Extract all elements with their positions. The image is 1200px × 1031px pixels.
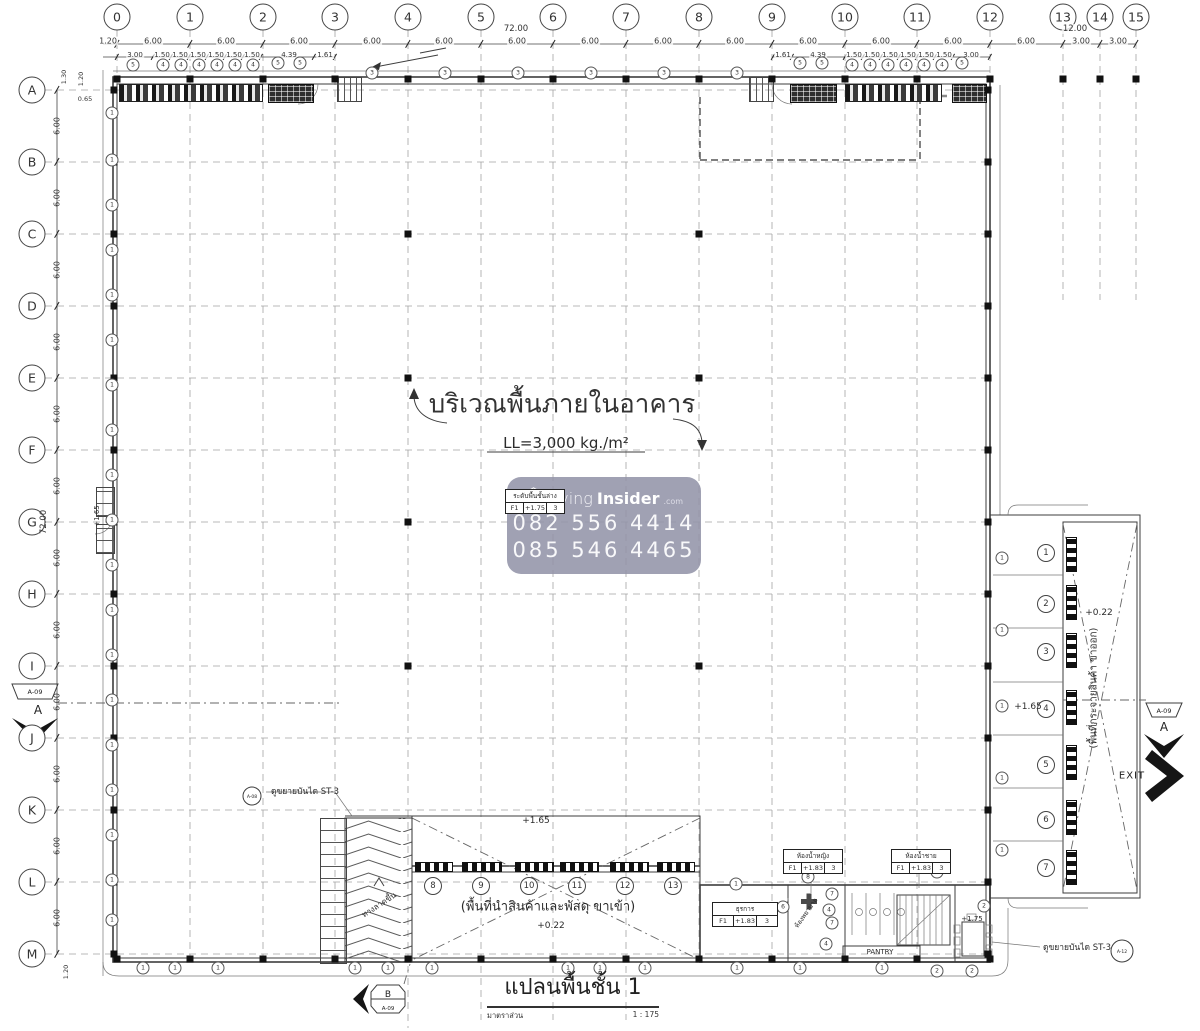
- grid-row-bubble: B: [19, 149, 46, 176]
- wall-panel-tag: 1: [996, 624, 1009, 637]
- dim-label: 6.00: [871, 37, 891, 46]
- annotation-text: +1.65: [93, 505, 101, 526]
- wall-panel-tag: 1: [106, 199, 119, 212]
- dim-label: 1.20: [98, 37, 118, 46]
- overall-dim-top: 72.00: [503, 24, 529, 34]
- wall-column: [111, 663, 118, 670]
- dim-label: 6.00: [53, 404, 62, 424]
- dim-label: 6.00: [289, 37, 309, 46]
- reference-tag: 4: [229, 59, 242, 72]
- toilet-fixtures-right: [845, 84, 942, 102]
- wall-column: [696, 76, 703, 83]
- reference-tag: 4: [820, 938, 833, 951]
- wall-column: [550, 76, 557, 83]
- dock-leveler: [462, 862, 502, 872]
- reference-tag: 4: [846, 59, 859, 72]
- wc-fixture: [870, 909, 877, 916]
- dock-leveler: [560, 862, 599, 872]
- section-line-a: [58, 700, 1146, 703]
- wall-column: [985, 591, 992, 598]
- wall-panel-tag: 1: [106, 784, 119, 797]
- dock-door-number: 5: [1037, 756, 1055, 774]
- section-sheet-left: A-09: [28, 688, 43, 696]
- reference-tag: 5: [816, 57, 829, 70]
- dock-door-number: 1: [1037, 544, 1055, 562]
- wall-column: [985, 447, 992, 454]
- dim-label: 3.00: [1071, 37, 1091, 46]
- reference-tag: 5: [127, 59, 140, 72]
- toilet-stall-partitions: [852, 893, 894, 935]
- dock-door-number: 2: [1037, 595, 1055, 613]
- grid-column-bubble: 9: [759, 4, 786, 31]
- grid-column-bubble: 0: [104, 4, 131, 31]
- reference-tag: 4: [175, 59, 188, 72]
- dim-label: 1.50: [917, 51, 935, 59]
- dock-annex-wall: [990, 515, 1140, 898]
- room-level-cell: 3: [825, 863, 842, 873]
- room-level-cell: +1.83: [734, 916, 757, 926]
- dock-door-number: 6: [1037, 811, 1055, 829]
- wall-panel-tag: 1: [106, 604, 119, 617]
- reference-tag: 5: [794, 57, 807, 70]
- wall-column: [111, 87, 118, 94]
- floor-plan-sheet: A-08 A-12 A-09 A A-09 A B A-09 012345678…: [0, 0, 1200, 1031]
- dim-label: 6.00: [53, 188, 62, 208]
- section-letter-left: A: [34, 703, 43, 717]
- inbound-cross-lines: [412, 818, 700, 960]
- grid-column-bubble: 2: [250, 4, 277, 31]
- section-arrow-b: [353, 984, 369, 1014]
- dim-label: 3.00: [1108, 37, 1128, 46]
- dim-label: 1.30: [60, 69, 68, 85]
- dim-label: 3.00: [126, 51, 144, 59]
- wall-panel-tag: 1: [169, 962, 182, 975]
- room-level-cell: +1.75: [524, 503, 547, 513]
- wc-fixture: [856, 909, 863, 916]
- reference-tag: 4: [882, 59, 895, 72]
- wall-panel-tag: 1: [106, 244, 119, 257]
- dock-leveler: [657, 862, 695, 872]
- grid-column-bubble: 4: [395, 4, 422, 31]
- reference-tag: 7: [826, 888, 839, 901]
- reference-tag: 2: [978, 900, 991, 913]
- reference-tag: 7: [826, 917, 839, 930]
- reference-tag: 2: [931, 965, 944, 978]
- reference-tag: 3: [366, 67, 379, 80]
- wall-panel-tag: 1: [106, 424, 119, 437]
- grid-column-bubble: 6: [540, 4, 567, 31]
- wall-panel-tag: 1: [106, 829, 119, 842]
- dim-label: 6.00: [725, 37, 745, 46]
- dock-leveler: [610, 862, 649, 872]
- grid-row-bubble: I: [19, 653, 46, 680]
- reference-tag: 3: [585, 67, 598, 80]
- wall-panel-tag: 1: [996, 844, 1009, 857]
- interior-column: [696, 663, 703, 670]
- dock-leveler: [1066, 745, 1077, 780]
- wall-panel-tag: 1: [106, 334, 119, 347]
- wall-column: [985, 519, 992, 526]
- reference-tag: 4: [823, 904, 836, 917]
- wall-column: [111, 231, 118, 238]
- dock-leveler: [1066, 537, 1077, 572]
- grid-row-bubble: H: [19, 581, 46, 608]
- wall-column: [111, 303, 118, 310]
- dim-label: 6.00: [143, 37, 163, 46]
- wall-column: [985, 807, 992, 814]
- annotation-text: บริเวณพื้นภายในอาคาร: [429, 384, 696, 425]
- wall-column: [114, 76, 121, 83]
- dim-label: 6.00: [580, 37, 600, 46]
- wall-panel-tag: 1: [106, 739, 119, 752]
- interior-column: [696, 231, 703, 238]
- dim-label: 1.50: [863, 51, 881, 59]
- dim-label: 0.65: [77, 95, 93, 103]
- wall-column: [111, 807, 118, 814]
- reference-tag: 4: [211, 59, 224, 72]
- grid-row-bubble: A: [19, 77, 46, 104]
- overall-dim-top-right: 12.00: [1062, 24, 1088, 34]
- room-level-cell: 3: [933, 863, 950, 873]
- stair-left-wall-lower: [96, 524, 115, 554]
- dim-label: 6.00: [53, 260, 62, 280]
- note-arrow-left-head: [409, 388, 419, 399]
- exit-arrow-icon: [1145, 750, 1184, 802]
- wall-panel-tag: 1: [426, 962, 439, 975]
- stair-top-left: [337, 77, 362, 102]
- wall-column: [985, 231, 992, 238]
- dim-label: 6.00: [53, 908, 62, 928]
- grid-column-bubble: 7: [613, 4, 640, 31]
- room-level-cell: 3: [547, 503, 564, 513]
- annotation-text: EXIT: [1119, 771, 1145, 782]
- annotation-text: +0.22: [1085, 608, 1113, 618]
- wall-column: [914, 76, 921, 83]
- interior-column: [696, 375, 703, 382]
- reference-tag: 4: [918, 59, 931, 72]
- grid-row-bubble: D: [19, 293, 46, 320]
- tank-block-right: [790, 84, 837, 103]
- wall-column: [985, 375, 992, 382]
- section-sheet-right: A-09: [1157, 707, 1172, 715]
- room-level-cell: F1: [892, 863, 910, 873]
- drawing-title: แปลนพื้นชั้น 1: [487, 969, 659, 1008]
- annotation-text: +1.75: [961, 915, 982, 923]
- dim-label: 1.61: [774, 51, 792, 59]
- wall-column: [987, 76, 994, 83]
- wall-column: [332, 76, 339, 83]
- grid-column-bubble: 5: [468, 4, 495, 31]
- grid-row-bubble: K: [19, 797, 46, 824]
- tank-block-corner: [952, 84, 987, 103]
- grid-row-bubble: F: [19, 437, 46, 464]
- reference-tag: 4: [900, 59, 913, 72]
- apron-bottom: [103, 908, 1008, 976]
- dim-label: 6.00: [53, 692, 62, 712]
- wall-panel-tag: 1: [996, 552, 1009, 565]
- dim-label: 6.00: [362, 37, 382, 46]
- wall-column: [842, 76, 849, 83]
- grid-row-bubble: J: [19, 725, 46, 752]
- wall-panel-tag: 1: [106, 914, 119, 927]
- reference-tag: 6: [777, 901, 790, 914]
- room-name: ห้องน้ำหญิง: [784, 850, 842, 863]
- wall-column: [985, 87, 992, 94]
- scale-label: มาตราส่วน: [487, 1010, 523, 1022]
- room-level-cell: F1: [713, 916, 734, 926]
- wall-column: [478, 956, 485, 963]
- wall-panel-tag: 1: [106, 514, 119, 527]
- toilet-fixtures-left: [119, 84, 263, 102]
- room-name: ธุรการ: [713, 903, 777, 916]
- dim-label: 1.50: [935, 51, 953, 59]
- section-line-b-connector: [404, 964, 410, 984]
- wall-panel-tag: 1: [106, 469, 119, 482]
- wall-panel-tag: 1: [106, 559, 119, 572]
- scale-value: 1 : 175: [633, 1010, 659, 1022]
- annotation-text: LL=3,000 kg./m²: [503, 434, 629, 452]
- dock-leveler: [1066, 690, 1077, 725]
- dim-label: 1.61: [316, 51, 334, 59]
- wall-panel-tag: 1: [106, 154, 119, 167]
- room-label-box: ระดับพื้นชั้นล่างF1+1.753: [505, 489, 565, 514]
- wall-column: [260, 956, 267, 963]
- wall-panel-tag: 1: [137, 962, 150, 975]
- wall-panel-tag: 1: [106, 694, 119, 707]
- section-letter-right: A: [1160, 720, 1169, 734]
- callout-ref-right: A-12: [1117, 949, 1127, 955]
- interior-column: [405, 375, 412, 382]
- grid-row-bubble: E: [19, 365, 46, 392]
- dim-label: 6.00: [53, 764, 62, 784]
- reference-tag: 5: [294, 57, 307, 70]
- dim-label: 6.00: [943, 37, 963, 46]
- section-letter-b: B: [385, 990, 391, 1000]
- wall-panel-tag: 1: [106, 649, 119, 662]
- dim-label: 6.00: [53, 476, 62, 496]
- grid-column-bubble: 10: [832, 4, 859, 31]
- annotation-text: +1.65: [522, 816, 550, 826]
- grid-column-bubble: 12: [977, 4, 1004, 31]
- wall-column: [985, 879, 992, 886]
- dock-door-number: 13: [664, 877, 682, 895]
- grid-column-bubble: 1: [177, 4, 204, 31]
- mezzanine-dashed-outline: [700, 97, 920, 160]
- annotation-text: (พื้นที่กระจายสินค้า ขาออก): [1087, 628, 1102, 749]
- dim-label: 6.00: [798, 37, 818, 46]
- wall-panel-tag: 1: [106, 379, 119, 392]
- wall-column: [405, 956, 412, 963]
- dock-door-number: 11: [568, 877, 586, 895]
- wall-column: [914, 956, 921, 963]
- dim-label: 6.00: [216, 37, 236, 46]
- annotation-text: +0.22: [537, 921, 565, 931]
- room-level-cell: +1.83: [802, 863, 825, 873]
- wall-panel-tag: 1: [996, 772, 1009, 785]
- reference-tag: 4: [864, 59, 877, 72]
- wc-fixture: [884, 909, 891, 916]
- reference-tag: 1: [794, 962, 807, 975]
- wall-column: [985, 159, 992, 166]
- wall-column: [260, 76, 267, 83]
- dim-label: 1.50: [845, 51, 863, 59]
- watermark-brand-bold: Insider: [597, 489, 660, 508]
- dim-label: 1.20: [62, 964, 70, 980]
- dock-leveler: [1066, 585, 1077, 620]
- wall-column: [187, 76, 194, 83]
- room-label-box: ห้องน้ำหญิงF1+1.833: [783, 849, 843, 874]
- stair-st3: [320, 818, 347, 964]
- interior-column: [405, 663, 412, 670]
- dim-label: 6.00: [1016, 37, 1036, 46]
- room-level-cell: F1: [784, 863, 802, 873]
- wall-column: [769, 76, 776, 83]
- dim-label: 6.00: [653, 37, 673, 46]
- wall-column: [111, 951, 118, 958]
- dock-door-number: 9: [472, 877, 490, 895]
- reference-tag: 1: [731, 962, 744, 975]
- wall-column: [187, 956, 194, 963]
- meeting-table: [962, 922, 984, 956]
- wall-column: [623, 956, 630, 963]
- wall-panel-tag: 1: [996, 700, 1009, 713]
- grid-column-bubble: 11: [904, 4, 931, 31]
- overall-dim-left: 72.00: [39, 509, 49, 535]
- tank-block-left: [268, 84, 314, 103]
- grid-column-bubble: 15: [1123, 4, 1150, 31]
- watermark-phone-1: 082 556 4414: [507, 511, 701, 535]
- dock-door-number: 3: [1037, 643, 1055, 661]
- wall-panel-tag: 1: [106, 289, 119, 302]
- grid-row-bubble: C: [19, 221, 46, 248]
- annotation-text: +1.65: [1014, 702, 1042, 712]
- dim-label: 6.00: [53, 116, 62, 136]
- reference-tag: 4: [193, 59, 206, 72]
- interior-column: [405, 231, 412, 238]
- room-level-cell: 3: [757, 916, 777, 926]
- dock-door-number: 10: [520, 877, 538, 895]
- reference-tag: 5: [272, 57, 285, 70]
- dock-leveler: [1066, 850, 1077, 885]
- ramp-hatch: [345, 818, 412, 962]
- wall-column: [985, 951, 992, 958]
- grid-row-bubble: L: [19, 869, 46, 896]
- dim-label: 1.50: [881, 51, 899, 59]
- grid-column-bubble: 3: [322, 4, 349, 31]
- dock-door-number: 8: [424, 877, 442, 895]
- office-stair-treads: [897, 895, 950, 945]
- room-name: ระดับพื้นชั้นล่าง: [506, 490, 564, 503]
- dock-leveler: [415, 862, 453, 872]
- reference-tag: 3: [731, 67, 744, 80]
- wall-column: [550, 956, 557, 963]
- wall-column: [1060, 76, 1067, 83]
- reference-tag: 3: [512, 67, 525, 80]
- room-name: ห้องน้ำชาย: [892, 850, 950, 863]
- title-block: แปลนพื้นชั้น 1 มาตราส่วน 1 : 175: [487, 969, 659, 1022]
- wall-column: [769, 956, 776, 963]
- reference-tag: 1: [876, 962, 889, 975]
- dim-label: 6.00: [507, 37, 527, 46]
- callout-ref-left: A-08: [247, 794, 257, 800]
- dim-label: 6.00: [53, 620, 62, 640]
- note-arrow-right-head: [697, 440, 707, 451]
- annotation-text: ดูขยายบันได ST-3: [1043, 940, 1111, 954]
- wall-column: [478, 76, 485, 83]
- wall-column: [842, 956, 849, 963]
- dim-label: 6.00: [53, 836, 62, 856]
- dim-label: 1.50: [899, 51, 917, 59]
- wall-column: [985, 663, 992, 670]
- wall-column: [985, 735, 992, 742]
- reference-tag: 1: [730, 878, 743, 891]
- wall-column: [332, 956, 339, 963]
- reference-tag: 2: [966, 965, 979, 978]
- grid-row-bubble: M: [19, 941, 46, 968]
- wall-panel-tag: 1: [382, 962, 395, 975]
- dock-leveler: [515, 862, 554, 872]
- wall-column: [405, 76, 412, 83]
- wall-column: [1133, 76, 1140, 83]
- wall-column: [623, 76, 630, 83]
- interior-column: [405, 519, 412, 526]
- wc-fixture: [898, 909, 905, 916]
- dim-label: 6.00: [434, 37, 454, 46]
- wall-column: [111, 591, 118, 598]
- annotation-text: PANTRY: [867, 948, 894, 956]
- dock-door-number: 12: [616, 877, 634, 895]
- wall-panel-tag: 1: [349, 962, 362, 975]
- wall-column: [111, 447, 118, 454]
- wall-panel-tag: 1: [106, 107, 119, 120]
- watermark-brand-suffix: .com: [663, 497, 683, 506]
- dock-leveler: [1066, 800, 1077, 835]
- reference-tag: 4: [936, 59, 949, 72]
- annotation-text: ดูขยายบันได ST-3: [271, 784, 339, 798]
- dock-leveler: [1066, 633, 1077, 668]
- section-sheet-b: A-09: [382, 1006, 395, 1012]
- reference-tag: 3: [658, 67, 671, 80]
- wall-column: [1097, 76, 1104, 83]
- wall-panel-tag: 1: [212, 962, 225, 975]
- reference-tag: 5: [956, 57, 969, 70]
- annotation-text: (พื้นที่นำสินค้าและพัสดุ ขาเข้า): [461, 896, 635, 917]
- grid-column-bubble: 14: [1087, 4, 1114, 31]
- watermark-phone-2: 085 546 4465: [507, 538, 701, 562]
- room-level-cell: +1.83: [910, 863, 933, 873]
- dim-label: 6.00: [53, 548, 62, 568]
- wall-panel-tag: 1: [106, 874, 119, 887]
- grid-column-bubble: 8: [686, 4, 713, 31]
- room-level-cell: F1: [506, 503, 524, 513]
- reference-tag: 3: [439, 67, 452, 80]
- reference-tag: 4: [247, 59, 260, 72]
- dock-door-number: 7: [1037, 859, 1055, 877]
- room-label-box: ห้องน้ำชายF1+1.833: [891, 849, 951, 874]
- dim-label: 6.00: [53, 332, 62, 352]
- room-label-box: ธุรการF1+1.833: [712, 902, 778, 927]
- dim-label: 1.20: [77, 71, 85, 87]
- wall-column: [696, 956, 703, 963]
- wall-column: [985, 303, 992, 310]
- reference-tag: 4: [157, 59, 170, 72]
